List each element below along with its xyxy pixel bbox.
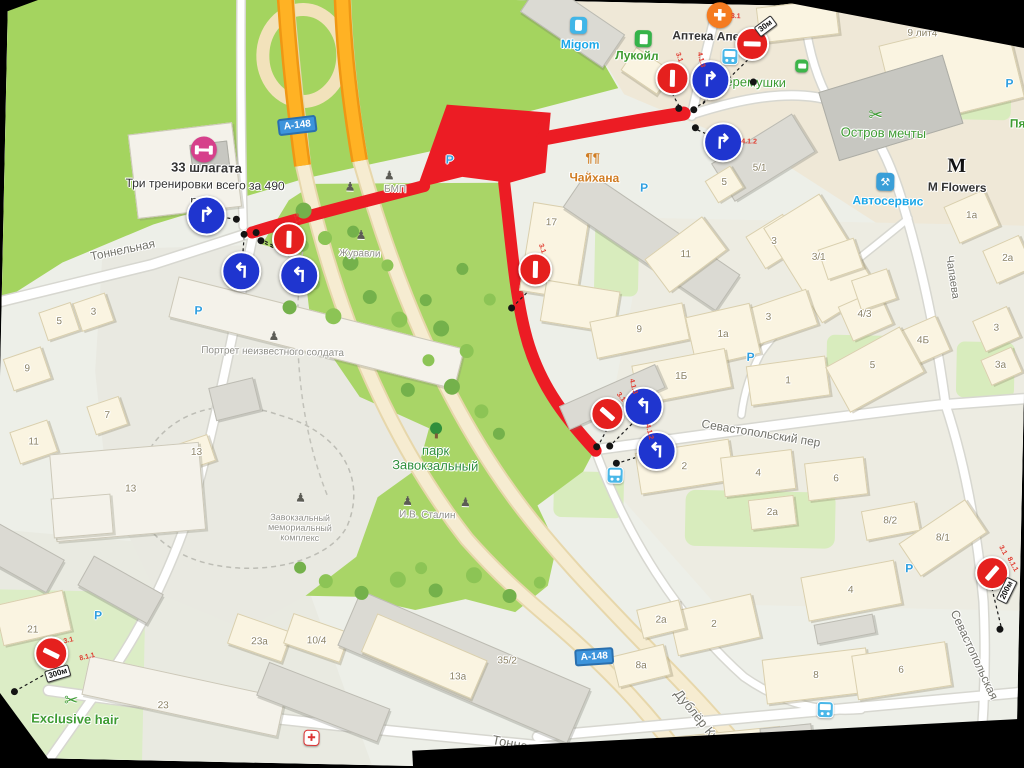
- parking-icon[interactable]: P: [94, 608, 102, 622]
- bus-stop-icon[interactable]: [817, 701, 834, 718]
- building-number: 2а: [1002, 253, 1013, 264]
- poi-ostrov-mechty[interactable]: Остров мечты: [841, 124, 927, 141]
- building-number: 35/2: [497, 655, 517, 666]
- sign-code-label: 3.1: [731, 13, 741, 20]
- building-number: 5/1: [753, 162, 767, 173]
- poi-chaihana[interactable]: Чайхана: [569, 170, 619, 185]
- building-number: 1а: [966, 210, 977, 221]
- parking-icon[interactable]: P: [905, 561, 913, 575]
- junction-dot: [11, 688, 18, 695]
- memorial-line3: комплекс: [280, 532, 319, 543]
- parking-icon[interactable]: P: [446, 153, 454, 167]
- building-number: 5: [870, 360, 876, 371]
- phone-icon[interactable]: [570, 17, 587, 34]
- memorial-line2: мемориальный: [268, 522, 332, 533]
- junction-dot: [241, 231, 248, 238]
- restaurant-icon[interactable]: ¶¶: [585, 150, 600, 165]
- building-number: 2: [681, 461, 687, 472]
- no-entry-bar: [533, 261, 538, 278]
- parking-icon[interactable]: P: [640, 181, 648, 195]
- building-number: 4: [755, 468, 761, 479]
- building-number: 13а: [449, 671, 466, 682]
- parking-icon[interactable]: P: [746, 350, 754, 364]
- phone-glyph: [575, 20, 582, 31]
- building: [51, 494, 114, 539]
- building-number: 6: [833, 473, 839, 484]
- poi-migom[interactable]: Migom: [561, 37, 600, 52]
- building-number: 17: [546, 217, 557, 228]
- building-number: 3: [771, 236, 777, 247]
- building-number: 9: [636, 324, 642, 335]
- poi-autoservice[interactable]: Автосервис: [852, 193, 923, 208]
- monument-icon: ♟: [460, 495, 471, 509]
- sign-code-label: 4.1.2: [741, 138, 757, 145]
- no-entry-bar: [286, 231, 291, 248]
- building-number: 3/1: [812, 252, 826, 263]
- park-name-1: парк: [422, 443, 449, 459]
- monument-icon: ♟: [356, 228, 367, 242]
- building-number: 3а: [995, 360, 1006, 371]
- tree-trunk: [435, 433, 438, 438]
- monument-stalin: И.В. Сталин: [399, 509, 456, 521]
- monument-zhuravli: Журавли: [339, 248, 381, 260]
- park-name-2: Завокзальный: [392, 457, 479, 474]
- building-number: 2: [711, 619, 717, 630]
- building-number: 8/1: [936, 532, 950, 543]
- scissors-icon[interactable]: ✂: [868, 105, 883, 125]
- monument-icon: ♟: [384, 168, 395, 182]
- building-number: 10/4: [307, 635, 327, 646]
- bus-stop-icon[interactable]: [721, 48, 738, 65]
- car-service-icon[interactable]: ⚒: [876, 173, 894, 191]
- park-tree-icon: [429, 422, 443, 438]
- junction-dot: [508, 304, 515, 311]
- building-number: 4Б: [917, 335, 929, 346]
- building-number: 11: [28, 436, 39, 447]
- building-number: 5: [721, 177, 727, 188]
- building-number: 4: [848, 585, 854, 596]
- building-number: 9: [24, 363, 30, 374]
- building-number: 3: [766, 312, 772, 323]
- bus-stop-icon[interactable]: [606, 467, 623, 484]
- building-number: 13: [191, 447, 202, 458]
- monument-icon: ♟: [345, 179, 356, 193]
- poi-pyat[interactable]: Пят: [1010, 116, 1024, 130]
- poi-exclusive-hair[interactable]: Exclusive hair: [31, 711, 119, 728]
- building-number: 13: [125, 483, 136, 494]
- building-number: 3: [91, 307, 97, 318]
- map-scene[interactable]: А-148А-148MigomЛукойлАптека АпельЧеремуш…: [0, 0, 1024, 768]
- no-entry-bar: [985, 565, 1000, 581]
- awning-glyph: [798, 63, 806, 68]
- store-icon[interactable]: [795, 59, 808, 72]
- road-badge-a148: А-148: [574, 647, 614, 667]
- building-number: 23а: [251, 636, 268, 647]
- monument-icon: ♟: [402, 494, 413, 508]
- no-entry-bar: [599, 407, 615, 422]
- building-number: 21: [27, 624, 38, 635]
- building-number: 8а: [635, 660, 646, 671]
- dumbbell-glyph: [197, 148, 211, 151]
- building-number: 23: [158, 700, 169, 711]
- tree-glyph: [429, 422, 443, 438]
- scissors-icon[interactable]: ✂: [64, 691, 79, 711]
- monument-bmp: БМП: [384, 184, 406, 195]
- building-number: 6: [898, 665, 904, 676]
- building-number: 1Б: [675, 371, 687, 382]
- building-number: 2а: [655, 615, 666, 626]
- medical-cross-icon[interactable]: ✚: [303, 730, 319, 746]
- monument-icon: ♟: [295, 490, 306, 504]
- pump-glyph: [639, 34, 647, 44]
- building-number: 4/3: [857, 309, 871, 320]
- building-number: 11: [680, 249, 691, 260]
- building-number: 1: [785, 375, 791, 386]
- building-number: 7: [104, 410, 110, 421]
- junction-dot: [253, 229, 260, 236]
- no-entry-bar: [43, 647, 60, 659]
- poi-mflowers-logo[interactable]: M: [947, 155, 966, 178]
- building-number: 1а: [717, 329, 728, 340]
- poi-lukoil[interactable]: Лукойл: [615, 48, 659, 63]
- building-number: 8: [813, 670, 819, 681]
- monument-icon: ♟: [268, 329, 279, 343]
- building-number: 8/2: [883, 515, 897, 526]
- poi-mflowers[interactable]: M Flowers: [928, 180, 987, 195]
- junction-dot: [675, 105, 682, 112]
- parking-icon[interactable]: P: [1005, 76, 1013, 90]
- parking-icon[interactable]: P: [194, 303, 202, 317]
- map-viewport: А-148А-148MigomЛукойлАптека АпельЧеремуш…: [0, 0, 1024, 768]
- no-entry-bar: [744, 41, 761, 46]
- junction-dot: [257, 237, 264, 244]
- fuel-icon[interactable]: [635, 30, 652, 47]
- building-number: 5: [56, 316, 62, 327]
- building-number: 2а: [767, 507, 778, 518]
- building-number: 3: [993, 323, 999, 334]
- no-entry-bar: [670, 70, 675, 87]
